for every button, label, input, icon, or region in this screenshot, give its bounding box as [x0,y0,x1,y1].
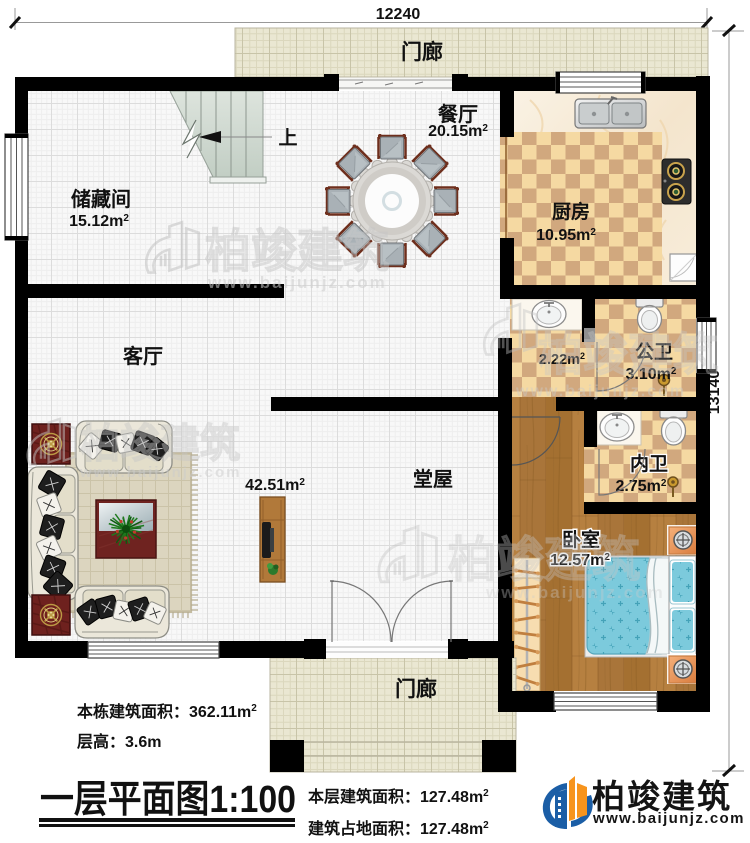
svg-text:建筑占地面积：127.48m2: 建筑占地面积：127.48m2 [308,819,489,838]
svg-text:www.baijunjz.com: www.baijunjz.com [515,383,686,400]
svg-text:一层平面图1:100: 一层平面图1:100 [40,779,296,821]
svg-text:门廊: 门廊 [395,677,437,701]
svg-text:门廊: 门廊 [401,40,443,64]
svg-text:10.95m2: 10.95m2 [536,227,596,244]
svg-text:42.51m2: 42.51m2 [245,477,305,494]
svg-text:客厅: 客厅 [122,344,163,368]
svg-text:柏竣建筑: 柏竣建筑 [205,225,389,277]
svg-text:www.baijunjz.com: www.baijunjz.com [592,810,745,827]
svg-text:厨房: 厨房 [552,200,590,223]
svg-text:15.12m2: 15.12m2 [69,213,129,230]
svg-text:www.baijunjz.com: www.baijunjz.com [485,583,665,602]
svg-text:内卫: 内卫 [630,452,668,475]
svg-text:2.75m2: 2.75m2 [616,478,667,495]
svg-text:20.15m2: 20.15m2 [428,123,488,140]
svg-text:柏竣建筑: 柏竣建筑 [538,329,718,380]
svg-text:本层建筑面积：127.48m2: 本层建筑面积：127.48m2 [308,787,489,806]
svg-text:www.baijunjz.com: www.baijunjz.com [207,273,387,292]
svg-text:柏竣建筑: 柏竣建筑 [448,534,640,587]
svg-text:上: 上 [278,127,297,149]
svg-text:柏竣建筑: 柏竣建筑 [80,422,240,466]
svg-text:www.baijunjz.com: www.baijunjz.com [79,464,241,481]
svg-text:本栋建筑面积：362.11m2: 本栋建筑面积：362.11m2 [77,702,257,721]
svg-text:12240: 12240 [376,6,421,23]
svg-text:储藏间: 储藏间 [71,187,131,211]
svg-text:层高：3.6m: 层高：3.6m [77,732,161,751]
svg-text:堂屋: 堂屋 [413,468,453,491]
